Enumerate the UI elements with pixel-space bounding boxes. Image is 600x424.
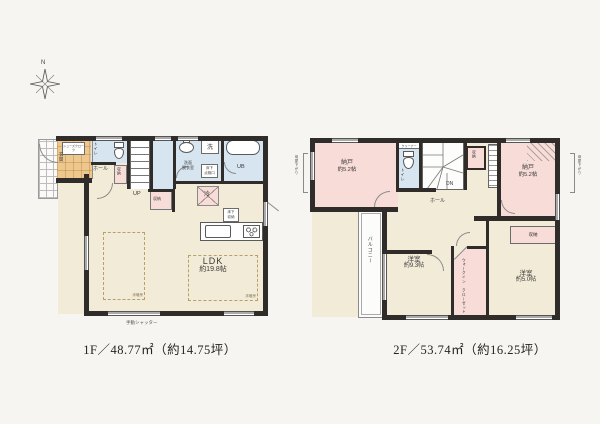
washroom-label-line2: 脱衣室 bbox=[177, 166, 199, 171]
wall-toilet2-bottom bbox=[396, 188, 436, 192]
shutter-note: 手動シャッター bbox=[126, 320, 158, 325]
window-ldk-left bbox=[84, 236, 89, 270]
inspection-line2: 点検口 bbox=[204, 171, 215, 176]
wic-label-line2: クローゼット bbox=[462, 288, 466, 314]
floor-heating-zone-left: 床暖房 bbox=[103, 232, 145, 300]
eaves-note-left: 母屋下がり bbox=[295, 155, 299, 175]
bed1-size: 約9.3帖 bbox=[392, 263, 436, 270]
wall-toilet1-bottom bbox=[91, 162, 116, 165]
hall2-label: ホール bbox=[430, 199, 445, 205]
window-nando-right-side bbox=[555, 194, 560, 220]
bed2-size: 約5.0帖 bbox=[502, 277, 550, 284]
window-bed2-bottom bbox=[516, 315, 552, 320]
wall-under-stair-top bbox=[148, 189, 174, 192]
hall-closet-label: 収納 bbox=[117, 167, 121, 176]
nando-right-name: 納戸 bbox=[507, 165, 549, 172]
bed2-closet-label: 収納 bbox=[529, 232, 538, 238]
floor2-plan: 収納 クリーナー bbox=[294, 138, 586, 330]
wall-toilet2-left bbox=[396, 138, 399, 190]
underfloor-line2: 収納 bbox=[228, 215, 235, 220]
floor-inspection-hatch: 床下 点検口 bbox=[201, 164, 218, 178]
nando-left-name: 納戸 bbox=[322, 160, 372, 167]
bathtub-icon bbox=[226, 140, 260, 155]
nando-left-label: 納戸 約5.2帖 bbox=[322, 160, 372, 173]
wic-area bbox=[454, 246, 486, 316]
floor1-caption: 1F／48.77㎡（約14.75坪） bbox=[55, 339, 265, 358]
eaves-tick-right-bottom bbox=[570, 192, 575, 193]
wic-label: ウォークイン クローゼット bbox=[461, 258, 466, 312]
compass: N bbox=[28, 60, 62, 102]
stairs2-area bbox=[422, 142, 464, 190]
stairs-dn-label: DN bbox=[446, 182, 453, 188]
eaves-tick-left-top bbox=[303, 153, 308, 154]
nando-left-size: 約5.2帖 bbox=[322, 167, 372, 173]
laundry-label: 洗 bbox=[207, 142, 213, 151]
window-toilet1-top bbox=[96, 136, 122, 141]
wall-stairs2-right bbox=[464, 138, 467, 190]
compass-north-label: N bbox=[41, 60, 45, 67]
window-nando-right-top bbox=[506, 138, 530, 143]
stairs1-area bbox=[130, 140, 150, 189]
under-stair-closet-label: 収納 bbox=[153, 197, 161, 202]
bed2-closet-area: 収納 bbox=[510, 226, 556, 244]
toilet2-shelf-box: クリーナー bbox=[398, 142, 420, 149]
bed1-label: 洋室 約9.3帖 bbox=[392, 256, 436, 270]
wall-toilet2-right bbox=[419, 138, 422, 190]
nando-right-size: 約5.2帖 bbox=[507, 172, 549, 178]
door-ldk-right bbox=[263, 202, 268, 226]
wall-wet-bottom bbox=[176, 181, 268, 184]
nando-right-label: 納戸 約5.2帖 bbox=[507, 165, 549, 178]
ldk-label: LDK 約19.8帖 bbox=[183, 256, 243, 274]
balcony-label: バルコニー bbox=[366, 236, 372, 264]
window-bed1-bottom bbox=[406, 315, 448, 320]
balcony-area bbox=[358, 210, 384, 318]
eaves-bracket-right bbox=[574, 153, 575, 193]
stair-closet-label: 収納 bbox=[472, 150, 476, 159]
bed2-label: 洋室 約5.0帖 bbox=[502, 270, 550, 284]
window-nando-left-side bbox=[310, 152, 315, 180]
washroom-label: 洗面 脱衣室 bbox=[177, 161, 199, 170]
window-ldk-bottom-right bbox=[224, 311, 254, 316]
stove-icon bbox=[243, 225, 260, 238]
washbasin-icon bbox=[179, 142, 194, 153]
genkan-label: 玄関 bbox=[59, 152, 64, 162]
floor2-caption: 2F／53.74㎡（約16.25坪） bbox=[355, 339, 585, 358]
kitchen-sink-icon bbox=[205, 225, 231, 238]
sloped-ceiling-hatch bbox=[527, 143, 555, 161]
wall-under-stair-right bbox=[172, 189, 175, 212]
toilet1-label: トイレ bbox=[93, 142, 98, 156]
hall1-label: ホール bbox=[93, 167, 108, 173]
compass-star-icon bbox=[30, 69, 60, 99]
stairs-up-label: UP bbox=[133, 191, 141, 197]
eaves-bracket-left bbox=[303, 153, 304, 193]
ldk-size: 約19.8帖 bbox=[183, 266, 243, 274]
eaves-tick-left-bottom bbox=[303, 192, 308, 193]
window-corridor-top bbox=[155, 136, 171, 141]
balcony-rail-line bbox=[361, 213, 381, 315]
wall-hall-nando-right bbox=[497, 138, 501, 218]
corridor-area bbox=[153, 140, 173, 189]
shoes-closet-label: シューズクローク bbox=[63, 145, 84, 152]
shoes-closet-label-box: シューズクローク bbox=[62, 142, 85, 155]
wall-stairs1-right bbox=[150, 136, 153, 189]
wall-genkan-bottom bbox=[56, 178, 92, 183]
bath-label: UB bbox=[237, 164, 245, 170]
wall-bed1-top bbox=[386, 250, 432, 254]
wall-wic-left bbox=[451, 246, 454, 316]
wall-wic-top bbox=[467, 246, 486, 249]
fridge-label: 冷 bbox=[204, 192, 210, 199]
ldk-name: LDK bbox=[183, 256, 243, 266]
wall-bed2-left bbox=[486, 221, 489, 316]
underfloor-storage-box: 床下 収納 bbox=[223, 208, 239, 222]
window-balcony-door bbox=[382, 254, 387, 300]
wic-label-line1: ウォークイン bbox=[462, 258, 466, 284]
floor-heating-label-left: 床暖房 bbox=[133, 293, 144, 298]
eaves-note-right: 母屋下がり bbox=[578, 155, 582, 175]
wall-bath-left bbox=[221, 136, 224, 181]
window-washroom-top bbox=[178, 136, 198, 141]
door-swing-line-right bbox=[267, 202, 279, 211]
toilet2-label: トイレ bbox=[400, 168, 405, 182]
winder-stairs-icon bbox=[423, 143, 463, 189]
window-ldk-bottom-left bbox=[108, 311, 160, 316]
toilet2-shelf-label: クリーナー bbox=[401, 144, 416, 148]
eaves-tick-right-top bbox=[570, 153, 575, 154]
wall-f2-right bbox=[555, 138, 560, 320]
floor-heating-label-right: 床暖房 bbox=[246, 294, 257, 299]
window-nando-left-top bbox=[332, 138, 358, 143]
wall-f1-right bbox=[263, 136, 268, 316]
wall-stairs1-left bbox=[127, 136, 130, 189]
floor-plan-sheet: N 洗 床下 点検口 床下 bbox=[0, 0, 600, 424]
floor1-plan: 洗 床下 点検口 床下 収納 床暖房 床暖房 bbox=[38, 136, 272, 328]
